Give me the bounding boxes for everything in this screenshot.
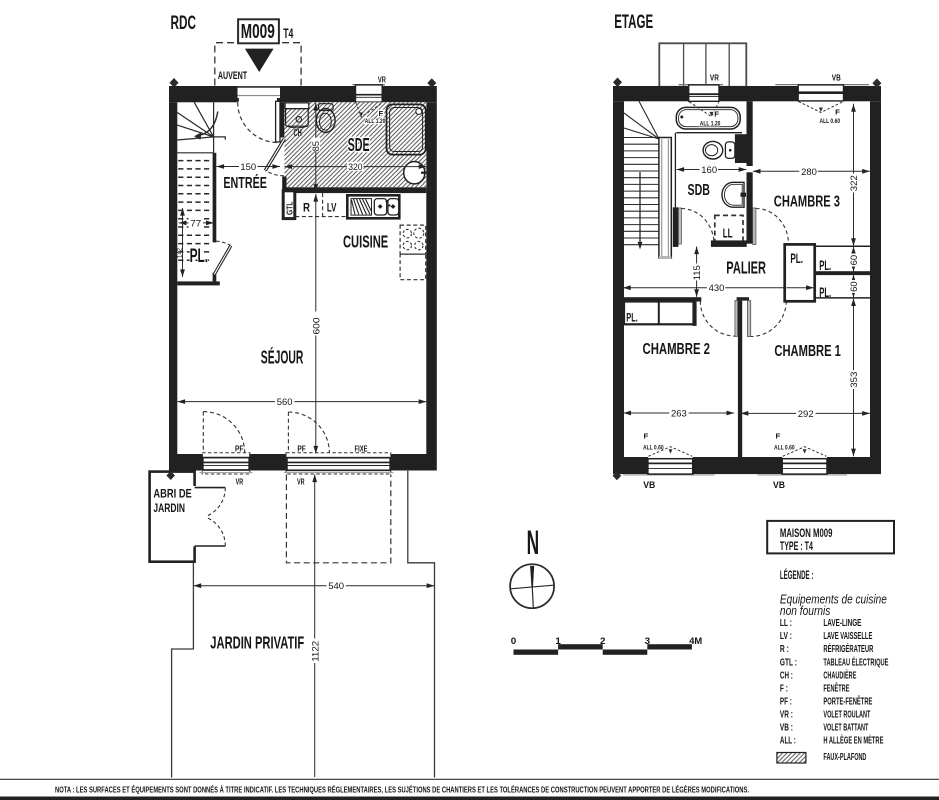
svg-text:PALIER: PALIER [726, 258, 766, 278]
svg-text:LAVE VAISSELLE: LAVE VAISSELLE [823, 631, 872, 642]
svg-text:LAVE-LINGE: LAVE-LINGE [823, 618, 861, 629]
svg-text:ALL 1.20: ALL 1.20 [700, 121, 721, 128]
svg-text:ALL 0.60: ALL 0.60 [820, 118, 841, 125]
svg-text:FENÊTRE: FENÊTRE [823, 683, 849, 695]
svg-text:ALL :: ALL : [780, 736, 796, 747]
svg-text:GTL: GTL [285, 201, 294, 215]
svg-text:CHAMBRE 3: CHAMBRE 3 [774, 193, 840, 210]
svg-text:540: 540 [328, 581, 344, 592]
svg-text:353: 353 [849, 372, 860, 388]
svg-text:TYPE : T4: TYPE : T4 [780, 539, 813, 553]
svg-text:VR: VR [710, 73, 720, 83]
svg-text:VR: VR [378, 74, 387, 84]
svg-text:M009: M009 [241, 21, 275, 43]
svg-text:FAUX-PLAFOND: FAUX-PLAFOND [823, 752, 866, 763]
svg-text:R: R [303, 201, 310, 215]
svg-text:F: F [835, 107, 840, 116]
svg-text:PORTE-FENÊTRE: PORTE-FENÊTRE [823, 696, 872, 708]
svg-text:160: 160 [701, 165, 717, 176]
svg-text:SÉJOUR: SÉJOUR [261, 347, 304, 369]
svg-text:R :: R : [780, 644, 789, 655]
svg-text:CHAMBRE 2: CHAMBRE 2 [643, 341, 711, 358]
svg-text:600: 600 [311, 318, 322, 335]
svg-text:PL.: PL. [819, 284, 831, 300]
svg-text:60: 60 [849, 281, 860, 292]
svg-text:ETAGE: ETAGE [614, 12, 653, 33]
svg-text:LL: LL [723, 226, 733, 241]
svg-text:ABRI DE: ABRI DE [153, 487, 191, 501]
svg-text:VB: VB [643, 480, 655, 490]
svg-text:non fournis: non fournis [780, 603, 831, 618]
svg-text:ENTRÉE: ENTRÉE [223, 173, 267, 192]
svg-text:320: 320 [348, 162, 362, 173]
svg-text:ALL 1.20: ALL 1.20 [365, 118, 386, 125]
svg-text:115: 115 [692, 265, 703, 280]
svg-text:JARDIN PRIVATIF: JARDIN PRIVATIF [210, 632, 304, 652]
svg-text:CH: CH [294, 128, 302, 139]
svg-text:VR :: VR : [780, 710, 793, 721]
svg-text:SDB: SDB [688, 182, 711, 199]
svg-text:142: 142 [176, 248, 183, 258]
svg-text:CHAMBRE 1: CHAMBRE 1 [774, 343, 841, 360]
svg-text:CH :: CH : [780, 671, 793, 682]
svg-text:PL.: PL. [790, 250, 803, 266]
svg-text:SDE: SDE [348, 135, 370, 156]
svg-text:263: 263 [671, 409, 687, 420]
svg-text:PF: PF [297, 443, 305, 453]
svg-text:LÉGENDE :: LÉGENDE : [780, 567, 814, 582]
svg-text:F: F [644, 432, 649, 441]
svg-text:ALL 0.60: ALL 0.60 [643, 445, 664, 452]
svg-text:VB: VB [832, 73, 841, 83]
svg-text:PL.: PL. [190, 245, 209, 267]
svg-text:VOLET ROULANT: VOLET ROULANT [823, 710, 870, 721]
svg-text:1122: 1122 [310, 641, 321, 662]
svg-text:CUISINE: CUISINE [343, 231, 388, 251]
svg-text:60: 60 [849, 255, 860, 266]
svg-text:LV :: LV : [780, 631, 792, 642]
svg-text:AUVENT: AUVENT [218, 70, 247, 82]
svg-text:VB :: VB : [780, 723, 793, 734]
svg-text:292: 292 [798, 409, 814, 420]
svg-text:H ALLÈGE EN MÈTRE: H ALLÈGE EN MÈTRE [823, 736, 883, 747]
svg-text:RDC: RDC [171, 13, 197, 34]
svg-text:F: F [714, 109, 719, 118]
svg-text:VB: VB [773, 480, 785, 490]
svg-text:N: N [527, 524, 540, 562]
svg-text:VR: VR [236, 477, 244, 487]
svg-text:PL.: PL. [626, 310, 638, 324]
svg-text:0: 0 [511, 636, 517, 647]
svg-text:FIXE: FIXE [355, 443, 368, 453]
svg-text:280: 280 [801, 167, 817, 178]
svg-text:F :: F : [780, 684, 788, 695]
svg-text:NOTA : LES SURFACES ET ÉQUIPEM: NOTA : LES SURFACES ET ÉQUIPEMENTS SONT … [55, 786, 749, 795]
svg-text:77: 77 [190, 219, 201, 230]
svg-text:T4: T4 [283, 26, 294, 41]
svg-text:VOLET BATTANT: VOLET BATTANT [823, 723, 868, 734]
svg-text:150: 150 [240, 162, 256, 173]
svg-text:RÉFRIGÉRATEUR: RÉFRIGÉRATEUR [823, 644, 873, 655]
svg-text:PF :: PF : [780, 697, 792, 708]
svg-text:LL :: LL : [780, 618, 792, 629]
svg-text:85: 85 [311, 141, 322, 151]
svg-text:LV: LV [327, 201, 337, 215]
svg-text:GTL :: GTL : [780, 658, 797, 669]
svg-text:F: F [776, 432, 781, 441]
svg-text:F: F [379, 109, 384, 118]
svg-text:CHAUDIÈRE: CHAUDIÈRE [823, 671, 856, 682]
svg-text:VR: VR [297, 477, 305, 487]
svg-text:PL.: PL. [819, 257, 831, 273]
svg-text:JARDIN: JARDIN [153, 501, 185, 515]
svg-text:322: 322 [849, 175, 860, 191]
svg-text:560: 560 [277, 397, 293, 408]
svg-text:PF: PF [235, 443, 243, 453]
svg-text:TABLEAU ÉLECTRIQUE: TABLEAU ÉLECTRIQUE [823, 658, 888, 669]
svg-text:ALL 0.60: ALL 0.60 [774, 445, 795, 452]
svg-text:430: 430 [709, 283, 725, 294]
